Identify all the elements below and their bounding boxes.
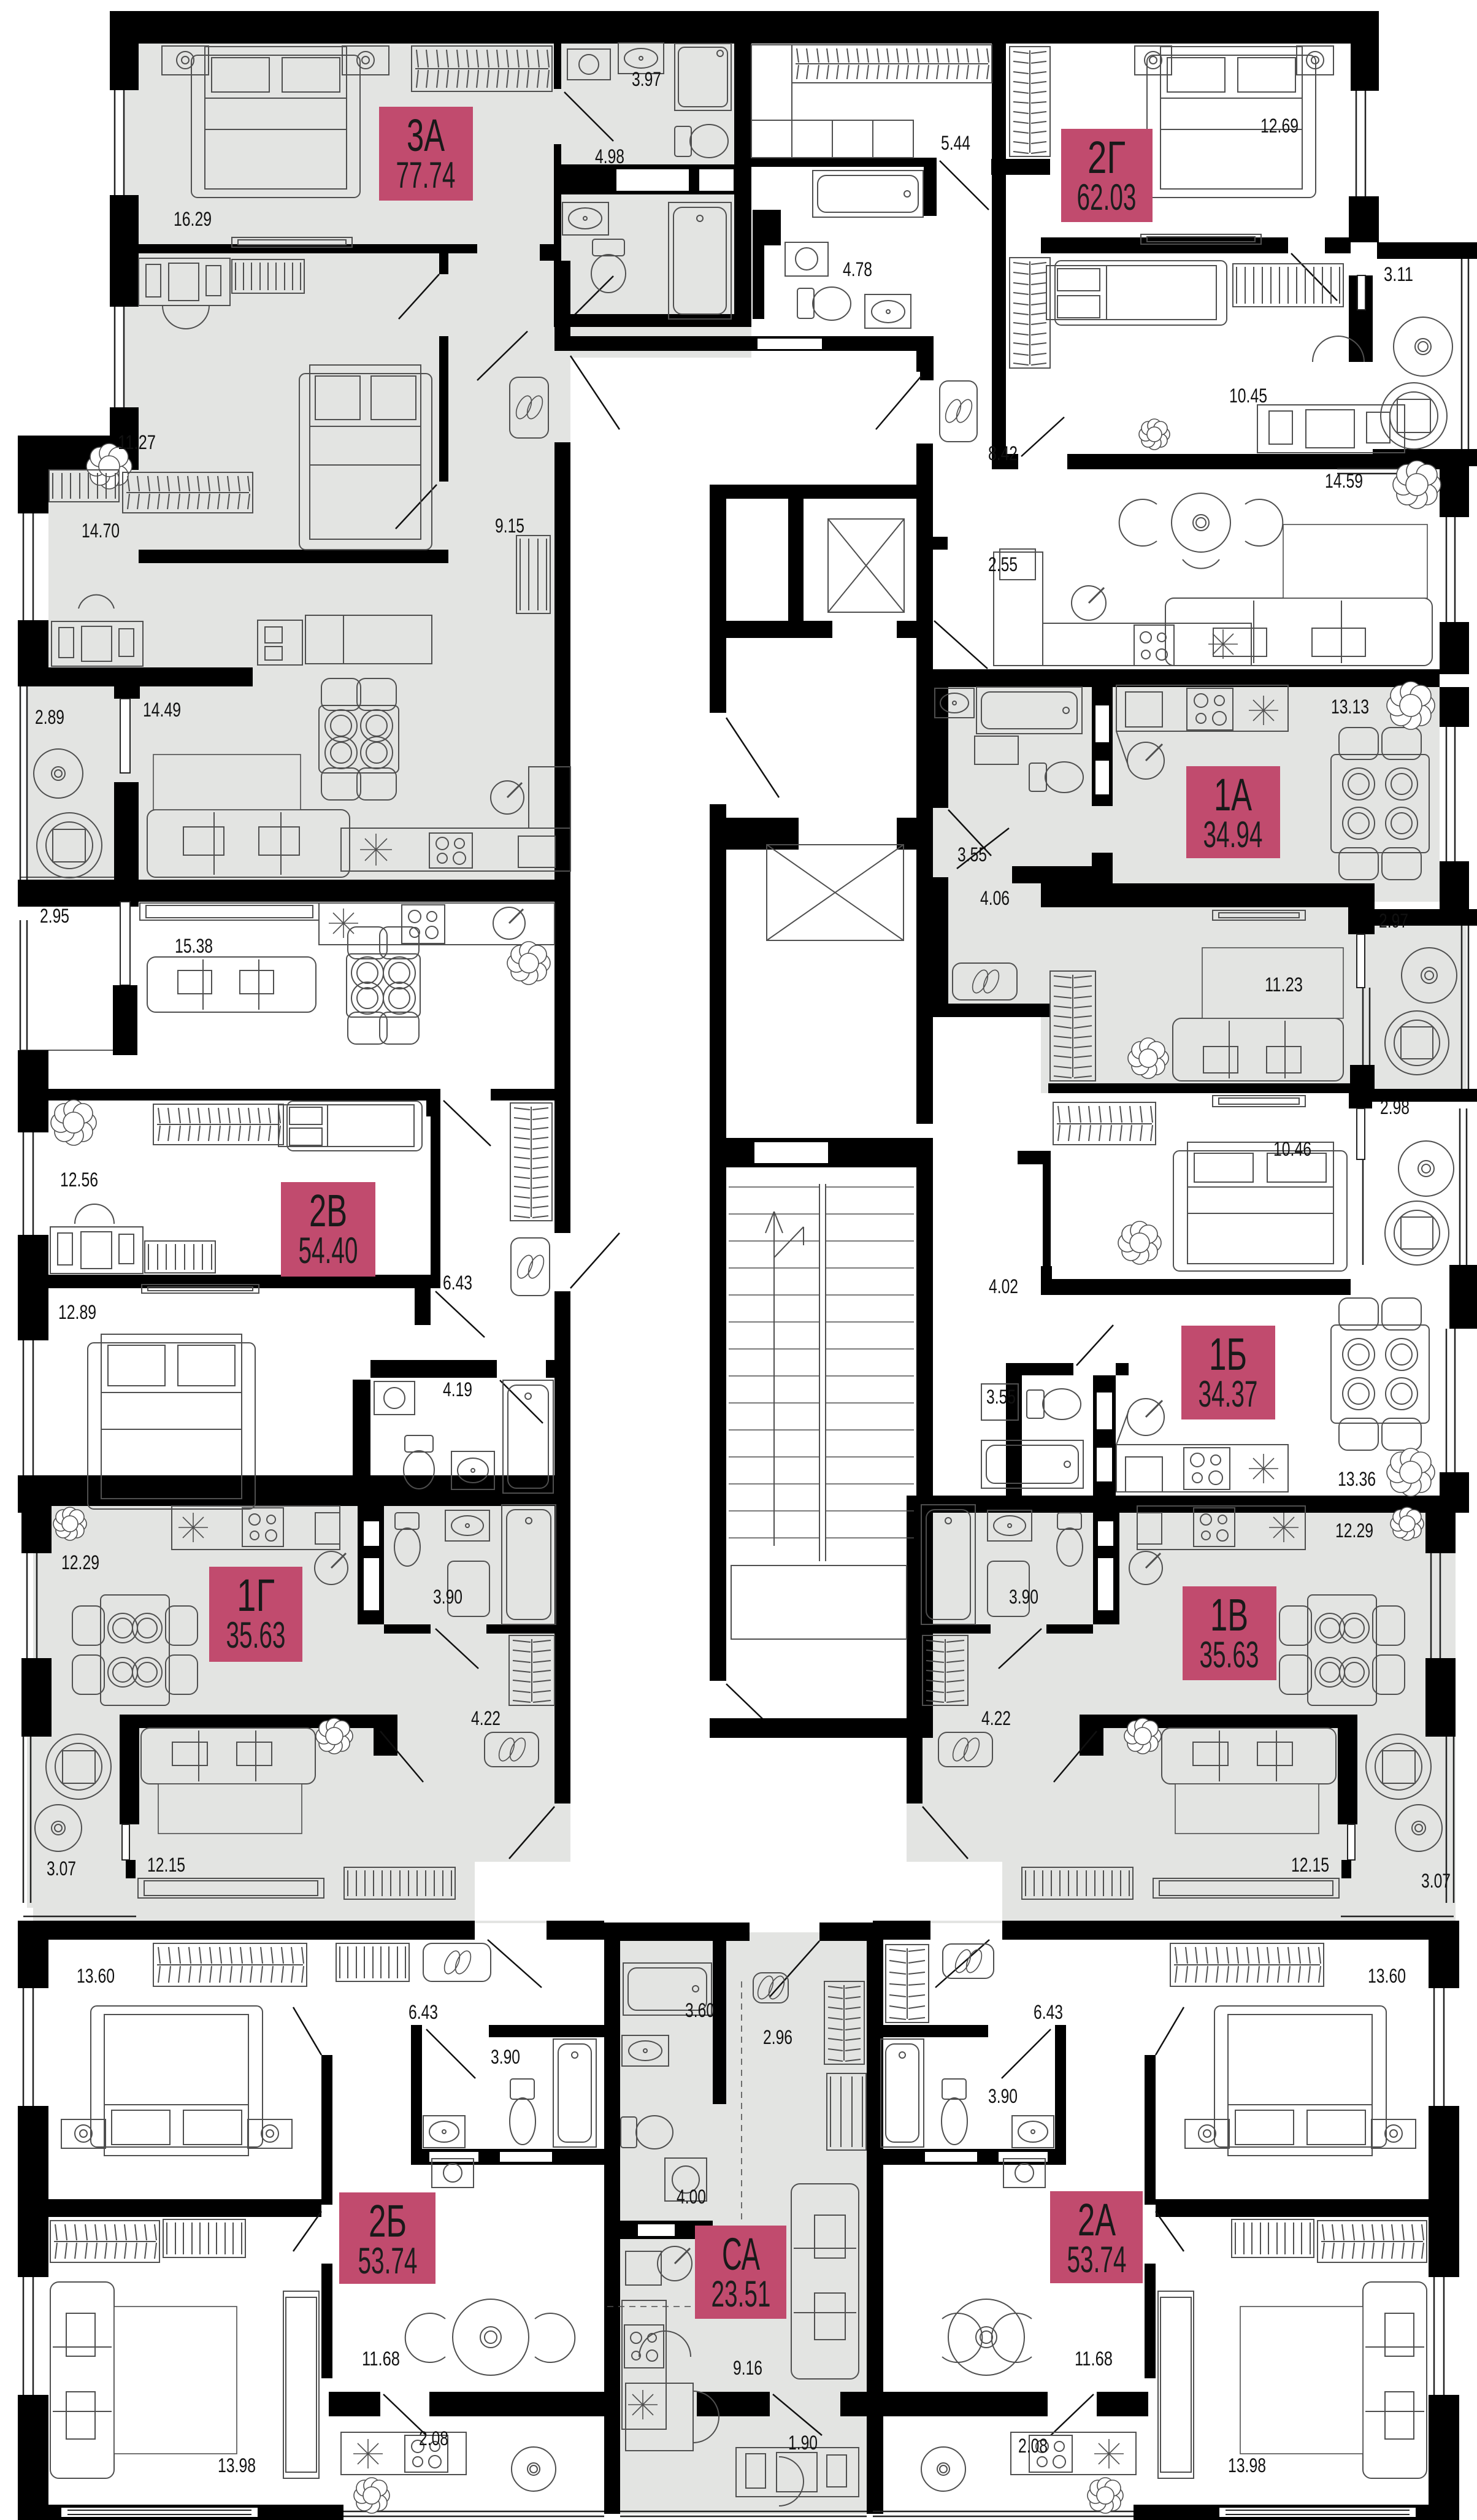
svg-text:12.29: 12.29 xyxy=(1335,1519,1373,1542)
svg-text:4.98: 4.98 xyxy=(595,145,624,167)
svg-text:2Г: 2Г xyxy=(1088,132,1126,183)
svg-text:13.60: 13.60 xyxy=(77,1965,115,1987)
svg-text:12.89: 12.89 xyxy=(58,1301,96,1323)
svg-text:2Б: 2Б xyxy=(369,2195,407,2246)
svg-text:54.40: 54.40 xyxy=(299,1230,358,1271)
svg-text:8.42: 8.42 xyxy=(988,442,1018,464)
svg-text:4.02: 4.02 xyxy=(989,1275,1018,1297)
svg-text:1В: 1В xyxy=(1210,1589,1248,1640)
svg-text:2.55: 2.55 xyxy=(988,553,1018,575)
svg-text:9.16: 9.16 xyxy=(733,2357,762,2379)
svg-text:3.90: 3.90 xyxy=(1009,1586,1038,1608)
svg-text:3.97: 3.97 xyxy=(632,68,661,90)
svg-text:34.94: 34.94 xyxy=(1203,814,1263,855)
svg-text:13.60: 13.60 xyxy=(1368,1965,1406,1987)
svg-text:2.08: 2.08 xyxy=(1018,2435,1048,2457)
svg-text:11.68: 11.68 xyxy=(362,2348,400,2370)
svg-text:1Б: 1Б xyxy=(1209,1329,1247,1380)
svg-text:14.49: 14.49 xyxy=(143,699,181,721)
svg-text:2.97: 2.97 xyxy=(1379,910,1408,932)
svg-text:14.70: 14.70 xyxy=(82,520,120,542)
svg-text:4.00: 4.00 xyxy=(677,2186,706,2208)
svg-text:2В: 2В xyxy=(309,1185,347,1236)
svg-text:1.90: 1.90 xyxy=(788,2432,818,2454)
svg-text:13.98: 13.98 xyxy=(218,2454,256,2476)
svg-text:11.23: 11.23 xyxy=(1265,974,1303,996)
svg-text:3.55: 3.55 xyxy=(986,1386,1016,1408)
svg-text:2А: 2А xyxy=(1078,2194,1116,2245)
svg-text:13.13: 13.13 xyxy=(1331,696,1369,718)
svg-text:77.74: 77.74 xyxy=(396,155,456,196)
svg-text:3.60: 3.60 xyxy=(685,1999,715,2021)
svg-text:4.22: 4.22 xyxy=(471,1707,501,1729)
svg-text:35.63: 35.63 xyxy=(1200,1634,1259,1675)
svg-text:5.44: 5.44 xyxy=(941,132,970,154)
svg-text:4.19: 4.19 xyxy=(443,1378,472,1400)
svg-text:12.56: 12.56 xyxy=(60,1169,98,1191)
svg-text:35.63: 35.63 xyxy=(226,1615,286,1656)
svg-text:12.15: 12.15 xyxy=(1291,1854,1329,1876)
svg-text:10.46: 10.46 xyxy=(1273,1138,1311,1160)
svg-text:12.29: 12.29 xyxy=(61,1551,99,1573)
svg-text:3.11: 3.11 xyxy=(1384,263,1413,285)
svg-text:1А: 1А xyxy=(1214,769,1252,820)
svg-text:15.38: 15.38 xyxy=(175,935,213,957)
svg-text:1Г: 1Г xyxy=(237,1570,275,1621)
svg-text:10.45: 10.45 xyxy=(1229,385,1267,407)
svg-text:6.43: 6.43 xyxy=(1034,2001,1063,2023)
svg-text:23.51: 23.51 xyxy=(712,2273,771,2314)
svg-text:3.90: 3.90 xyxy=(433,1586,462,1608)
svg-text:11.27: 11.27 xyxy=(118,431,156,453)
svg-text:2.08: 2.08 xyxy=(419,2427,448,2449)
svg-text:12.15: 12.15 xyxy=(147,1854,185,1876)
svg-text:53.74: 53.74 xyxy=(1067,2239,1127,2280)
svg-text:13.98: 13.98 xyxy=(1228,2454,1266,2476)
svg-text:6.43: 6.43 xyxy=(443,1272,472,1294)
svg-text:СА: СА xyxy=(722,2229,760,2280)
svg-text:3.90: 3.90 xyxy=(988,2085,1018,2107)
svg-text:62.03: 62.03 xyxy=(1077,177,1137,218)
svg-text:4.22: 4.22 xyxy=(981,1707,1011,1729)
svg-text:3А: 3А xyxy=(407,110,445,161)
svg-text:4.78: 4.78 xyxy=(843,258,872,280)
svg-text:3.90: 3.90 xyxy=(491,2046,520,2068)
svg-text:2.96: 2.96 xyxy=(763,2026,792,2048)
svg-text:6.43: 6.43 xyxy=(409,2001,438,2023)
svg-text:3.07: 3.07 xyxy=(1421,1870,1451,1892)
svg-text:2.89: 2.89 xyxy=(35,706,64,728)
svg-text:3.55: 3.55 xyxy=(957,843,987,866)
svg-text:2.95: 2.95 xyxy=(40,905,69,927)
svg-text:34.37: 34.37 xyxy=(1199,1373,1258,1415)
svg-text:11.68: 11.68 xyxy=(1075,2348,1113,2370)
svg-text:12.69: 12.69 xyxy=(1260,115,1299,137)
svg-text:53.74: 53.74 xyxy=(358,2240,418,2281)
svg-text:13.36: 13.36 xyxy=(1338,1468,1376,1490)
svg-text:9.15: 9.15 xyxy=(495,515,524,537)
svg-text:14.59: 14.59 xyxy=(1325,470,1363,492)
svg-text:4.06: 4.06 xyxy=(980,887,1010,909)
svg-text:2.98: 2.98 xyxy=(1380,1096,1410,1118)
svg-text:3.07: 3.07 xyxy=(47,1857,76,1880)
svg-text:16.29: 16.29 xyxy=(174,208,212,230)
